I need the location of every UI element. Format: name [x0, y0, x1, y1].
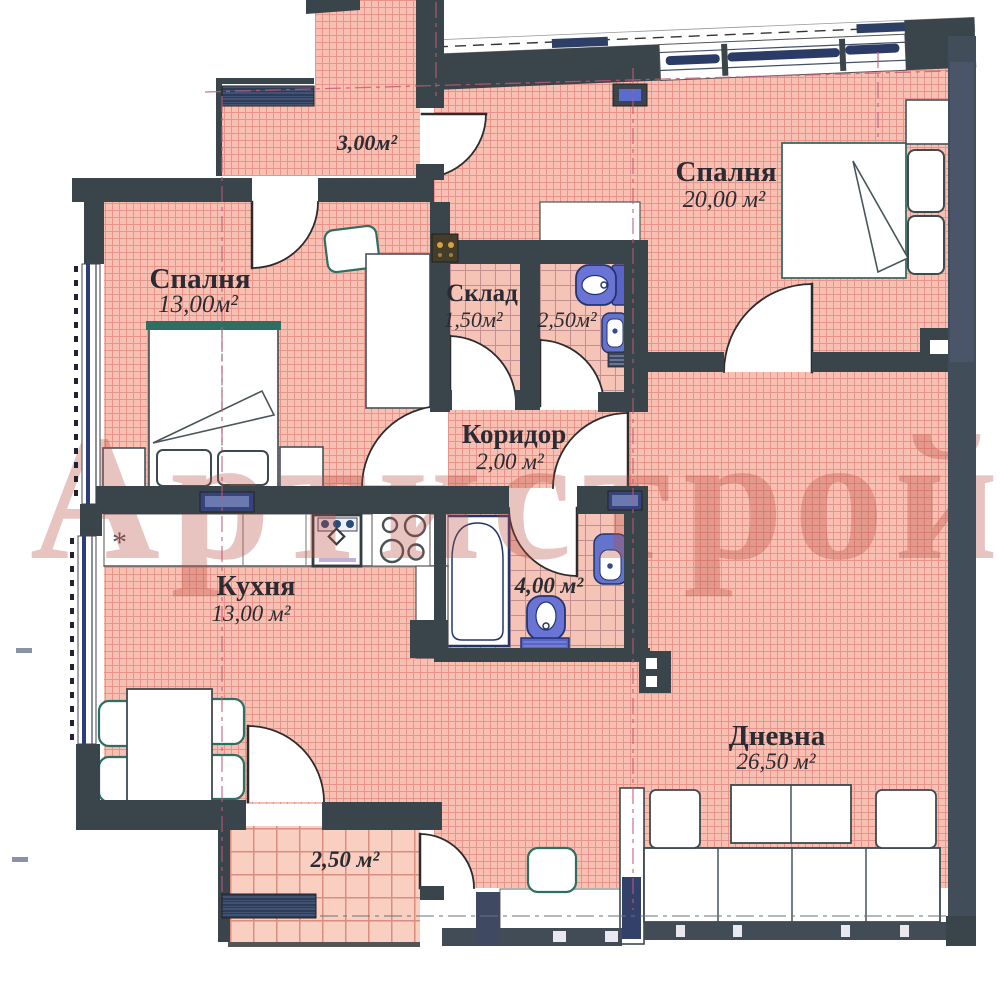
- svg-text:4,00 м²: 4,00 м²: [514, 573, 585, 598]
- svg-text:2,50м²: 2,50м²: [537, 307, 597, 332]
- svg-text:13,00 м²: 13,00 м²: [211, 601, 291, 626]
- svg-text:3,00м²: 3,00м²: [336, 130, 398, 155]
- svg-text:2,00 м²: 2,00 м²: [476, 449, 545, 474]
- svg-text:Спалня: Спалня: [675, 156, 776, 188]
- svg-text:Дневна: Дневна: [729, 720, 826, 752]
- svg-text:Склад: Склад: [446, 280, 518, 307]
- svg-text:Коридор: Коридор: [462, 419, 566, 449]
- svg-text:20,00 м²: 20,00 м²: [683, 187, 766, 213]
- svg-text:2,50 м²: 2,50 м²: [310, 847, 381, 872]
- svg-text:Кухня: Кухня: [217, 571, 296, 602]
- svg-text:1,50м²: 1,50м²: [443, 307, 503, 332]
- svg-text:13,00м²: 13,00м²: [158, 291, 238, 318]
- svg-text:26,50 м²: 26,50 м²: [736, 749, 816, 774]
